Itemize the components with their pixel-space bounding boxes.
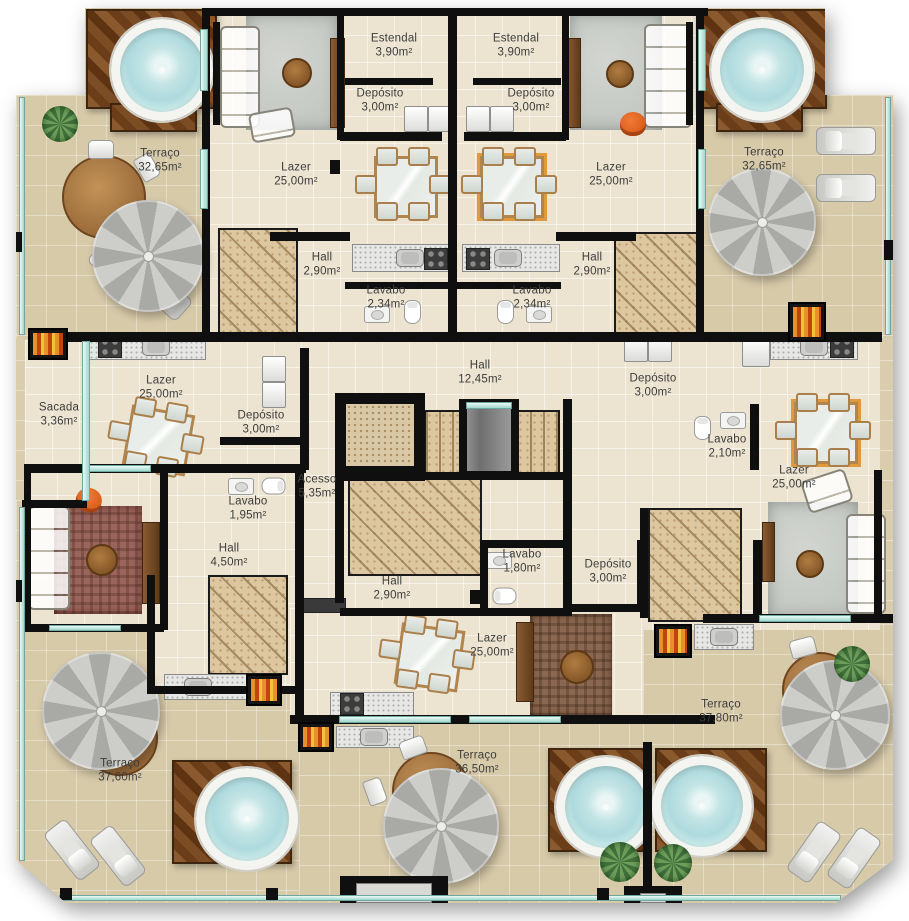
room-label-deposito-mid-left: Depósito3,00m² [238, 409, 285, 438]
wall [563, 399, 572, 616]
room-name: Lavabo [513, 284, 552, 298]
room-area: 37,80m² [699, 712, 743, 726]
hot-tub-bottom-left [196, 768, 298, 870]
room-name: Hall [374, 575, 411, 589]
chair [514, 202, 536, 221]
stove-top-left [424, 248, 448, 270]
room-label-terraco-top-left: Terraço32,65m² [138, 147, 182, 176]
pillar [470, 590, 480, 604]
room-name: Terraço [98, 757, 142, 771]
room-area: 37,60m² [98, 771, 142, 785]
tv-panel-mid-right [762, 522, 775, 582]
window [201, 30, 207, 90]
room-name: Lazer [589, 161, 633, 175]
room-area: 32,65m² [138, 161, 182, 175]
grill-bottom-right [654, 624, 692, 658]
dining-set-bottom-center [382, 615, 473, 694]
room-label-lazer-bottom-center: Lazer25,00m² [470, 632, 514, 661]
room-area: 3,00m² [585, 572, 632, 586]
room-label-lavabo-top-left: Lavabo2,34m² [367, 284, 406, 313]
chair [427, 673, 451, 695]
room-label-deposito-top-right: Depósito3,00m² [508, 87, 555, 116]
room-area: 25,00m² [139, 388, 183, 402]
wall [147, 575, 155, 694]
wall [686, 22, 693, 125]
pillar [266, 888, 278, 900]
wall [473, 78, 561, 85]
wall [300, 348, 309, 470]
room-label-lazer-mid-left: Lazer25,00m² [139, 374, 183, 403]
room-area: 12,45m² [458, 373, 502, 387]
kitchen-sink-top-right [494, 249, 522, 267]
room-name: Estendal [371, 32, 417, 46]
wall [270, 232, 350, 241]
sliding-door [50, 626, 120, 630]
wall [750, 404, 759, 470]
room-area: 3,00m² [508, 101, 555, 115]
room-label-lazer-top-right: Lazer25,00m² [589, 161, 633, 190]
room-name: Depósito [630, 372, 677, 386]
room-label-estendal-top-right: Estendal3,90m² [493, 32, 539, 61]
room-name: Lavabo [503, 548, 542, 562]
umbrella-bottom-left [42, 652, 160, 770]
basin-lavabo-mid-right [720, 412, 746, 429]
room-label-deposito-bottom-right: Depósito3,00m² [585, 558, 632, 587]
orange-chair-top-right [620, 112, 646, 136]
glass-rail-left-lower [20, 508, 24, 860]
wall [420, 472, 563, 480]
dining-set-mid-right-highlighted [782, 396, 864, 464]
room-area: 3,90m² [371, 46, 417, 60]
floor-plan: Estendal3,90m² Estendal3,90m² Depósito3,… [0, 0, 909, 921]
room-label-lavabo-bottom-center: Lavabo1,80m² [503, 548, 542, 577]
elevator-2-cab [467, 409, 511, 471]
wall [345, 78, 433, 85]
room-label-hall-top-left: Hall2,90m² [304, 251, 341, 280]
wall [340, 132, 442, 141]
outdoor-sink-bottom-right [710, 628, 738, 646]
glass-rail-bottom [60, 896, 840, 900]
plan-shadow: Estendal3,90m² Estendal3,90m² Depósito3,… [0, 0, 909, 921]
window [699, 150, 705, 208]
toilet-lavabo-top-left [404, 300, 421, 324]
room-label-terraco-bottom-right: Terraço37,80m² [699, 698, 743, 727]
room-label-hall-central: Hall12,45m² [458, 359, 502, 388]
room-label-acesso: Acesso5,35m² [298, 473, 337, 502]
room-label-terraco-bottom-center: Terraço36,50m² [455, 749, 499, 778]
window [201, 150, 207, 208]
chair [828, 448, 850, 467]
wall [60, 332, 882, 342]
chair [88, 140, 114, 159]
wall [874, 470, 882, 620]
wall [213, 22, 220, 125]
window-sacada [83, 342, 89, 500]
room-name: Terraço [455, 749, 499, 763]
chair [514, 147, 536, 166]
washer-deposito-mid-left-1 [262, 356, 286, 382]
elevator-2-door [467, 403, 511, 408]
stairs-bottom-left-unit [208, 575, 288, 675]
room-label-terraco-bottom-left: Terraço37,60m² [98, 757, 142, 786]
umbrella-top-left [92, 200, 204, 312]
room-area: 25,00m² [589, 175, 633, 189]
room-name: Terraço [699, 698, 743, 712]
sofa-mid-left-living [28, 506, 70, 610]
room-area: 3,90m² [493, 46, 539, 60]
pillar [597, 888, 609, 900]
room-area: 2,90m² [574, 265, 611, 279]
room-name: Depósito [508, 87, 555, 101]
chair [461, 175, 483, 194]
room-name: Hall [574, 251, 611, 265]
glass-rail-left [20, 98, 24, 334]
room-area: 25,00m² [772, 478, 816, 492]
stairs-core-winder [348, 472, 482, 576]
room-label-sacada: Sacada3,36m² [39, 401, 79, 430]
room-name: Depósito [357, 87, 404, 101]
wall [562, 12, 569, 140]
chair [403, 614, 427, 636]
room-label-deposito-top-left: Depósito3,00m² [357, 87, 404, 116]
room-label-hall-left: Hall4,50m² [211, 542, 248, 571]
wall [160, 468, 168, 630]
pillar [330, 160, 340, 174]
grill-bottom-center [298, 722, 334, 752]
chair [434, 618, 458, 640]
glass-rail-right [886, 98, 890, 334]
wall [480, 540, 488, 610]
room-name: Sacada [39, 401, 79, 415]
room-area: 32,65m² [742, 160, 786, 174]
dining-set-top-right-highlighted [468, 150, 550, 218]
room-area: 5,35m² [298, 487, 337, 501]
pillar [60, 888, 72, 900]
umbrella-bottom-center [383, 768, 499, 884]
room-area: 2,90m² [374, 589, 411, 603]
sofa-top-right [644, 24, 692, 128]
lounger-top-right-2 [816, 174, 876, 202]
room-name: Lazer [139, 374, 183, 388]
room-name: Acesso [298, 473, 337, 487]
room-name: Depósito [585, 558, 632, 572]
room-name: Lavabo [367, 284, 406, 298]
washer-deposito-mid-left-2 [262, 382, 286, 408]
hot-tub-bottom-center-1 [556, 757, 656, 857]
room-area: 25,00m² [274, 175, 318, 189]
room-area: 2,34m² [513, 298, 552, 312]
chair [355, 175, 377, 194]
chair [376, 147, 398, 166]
room-label-lavabo-top-right: Lavabo2,34m² [513, 284, 552, 313]
grill-bottom-left [246, 674, 282, 706]
wall [753, 540, 762, 618]
wall [643, 742, 652, 894]
chair [107, 420, 132, 443]
wall [340, 608, 570, 616]
sideboard-bottom-center [516, 622, 534, 702]
plant [834, 646, 870, 682]
wall [464, 132, 566, 141]
room-name: Lavabo [229, 495, 268, 509]
toilet-lavabo-mid-left [262, 478, 286, 495]
chair [376, 202, 398, 221]
chair [395, 668, 419, 690]
room-name: Estendal [493, 32, 539, 46]
outdoor-sink-bottom-center [360, 728, 388, 746]
umbrella-bottom-right [780, 660, 890, 770]
room-label-lavabo-mid-right: Lavabo2,10m² [708, 433, 747, 462]
wall [22, 500, 87, 508]
basin-lavabo-mid-left [228, 478, 254, 495]
room-label-lazer-top-left: Lazer25,00m² [274, 161, 318, 190]
chair [164, 401, 189, 424]
room-name: Terraço [138, 147, 182, 161]
kitchen-sink-top-left [396, 249, 424, 267]
room-name: Lazer [772, 464, 816, 478]
toilet-lavabo-top-right [497, 300, 514, 324]
wall [337, 12, 344, 140]
chair [408, 202, 430, 221]
room-area: 3,00m² [238, 423, 285, 437]
grill-top-left [28, 328, 68, 360]
coffee-table-mid-right [796, 550, 824, 578]
wall [220, 437, 305, 445]
sliding-door [90, 466, 150, 471]
pillar [10, 232, 22, 252]
room-area: 3,36m² [39, 415, 79, 429]
room-name: Lavabo [708, 433, 747, 447]
room-label-terraco-top-right: Terraço32,65m² [742, 146, 786, 175]
wall [295, 468, 304, 723]
room-label-lazer-mid-right: Lazer25,00m² [772, 464, 816, 493]
chair [482, 147, 504, 166]
toilet-lavabo-bottom-center [493, 588, 517, 605]
chair [408, 147, 430, 166]
lounger-top-right-1 [816, 127, 876, 155]
grill-top-right [788, 302, 826, 342]
room-area: 4,50m² [211, 556, 248, 570]
chair [828, 393, 850, 412]
room-name: Hall [304, 251, 341, 265]
wall [556, 232, 636, 241]
coffee-table-bottom-center [560, 650, 594, 684]
chimney-bottom-center [340, 876, 448, 910]
room-name: Hall [211, 542, 248, 556]
stairs-bottom-right-unit [648, 508, 742, 622]
room-area: 3,00m² [630, 386, 677, 400]
washer-top-left-1 [404, 106, 428, 132]
chair [796, 393, 818, 412]
window [699, 30, 705, 90]
hot-tub-top-left [111, 19, 213, 121]
hot-tub-top-right [711, 19, 813, 121]
room-area: 2,10m² [708, 447, 747, 461]
sliding-door [760, 616, 850, 621]
chair [535, 175, 557, 194]
room-label-hall-top-right: Hall2,90m² [574, 251, 611, 280]
chair [180, 433, 205, 456]
room-label-lavabo-mid-left: Lavabo1,95m² [229, 495, 268, 524]
floor-plan-image: Estendal3,90m² Estendal3,90m² Depósito3,… [0, 0, 909, 921]
coffee-table-mid-left [86, 544, 118, 576]
stairs-top-right-unit [614, 232, 698, 336]
plant [654, 844, 692, 882]
plant [600, 842, 640, 882]
room-label-hall-bottom-center: Hall2,90m² [374, 575, 411, 604]
room-name: Lazer [274, 161, 318, 175]
stove-top-right [466, 248, 490, 270]
chair [378, 638, 402, 660]
wall [24, 468, 31, 628]
coffee-table-top-left [282, 58, 312, 88]
room-name: Depósito [238, 409, 285, 423]
room-name: Terraço [742, 146, 786, 160]
room-name: Lazer [470, 632, 514, 646]
outdoor-stove-bottom-center [340, 693, 364, 715]
sliding-door [470, 717, 560, 722]
wall [565, 604, 645, 612]
hot-tub-bottom-center-2 [652, 756, 752, 856]
elevator-cab [346, 404, 414, 466]
room-area: 25,00m² [470, 646, 514, 660]
chair [482, 202, 504, 221]
room-label-deposito-mid-right: Depósito3,00m² [630, 372, 677, 401]
room-area: 36,50m² [455, 763, 499, 777]
chair [775, 421, 797, 440]
stairs-top-left-unit [218, 228, 298, 336]
room-area: 2,34m² [367, 298, 406, 312]
room-area: 2,90m² [304, 265, 341, 279]
coffee-table-top-right [606, 60, 634, 88]
umbrella-top-right [708, 168, 816, 276]
room-name: Hall [458, 359, 502, 373]
room-area: 3,00m² [357, 101, 404, 115]
pillar [884, 240, 896, 260]
pillar [10, 580, 22, 602]
washer-top-right-1 [466, 106, 490, 132]
plant [42, 106, 78, 142]
dining-set-top-left [362, 150, 444, 218]
chair [849, 421, 871, 440]
sliding-door [340, 717, 450, 722]
room-area: 1,80m² [503, 562, 542, 576]
wall [640, 508, 648, 618]
room-area: 1,95m² [229, 509, 268, 523]
room-label-estendal-top-left: Estendal3,90m² [371, 32, 417, 61]
